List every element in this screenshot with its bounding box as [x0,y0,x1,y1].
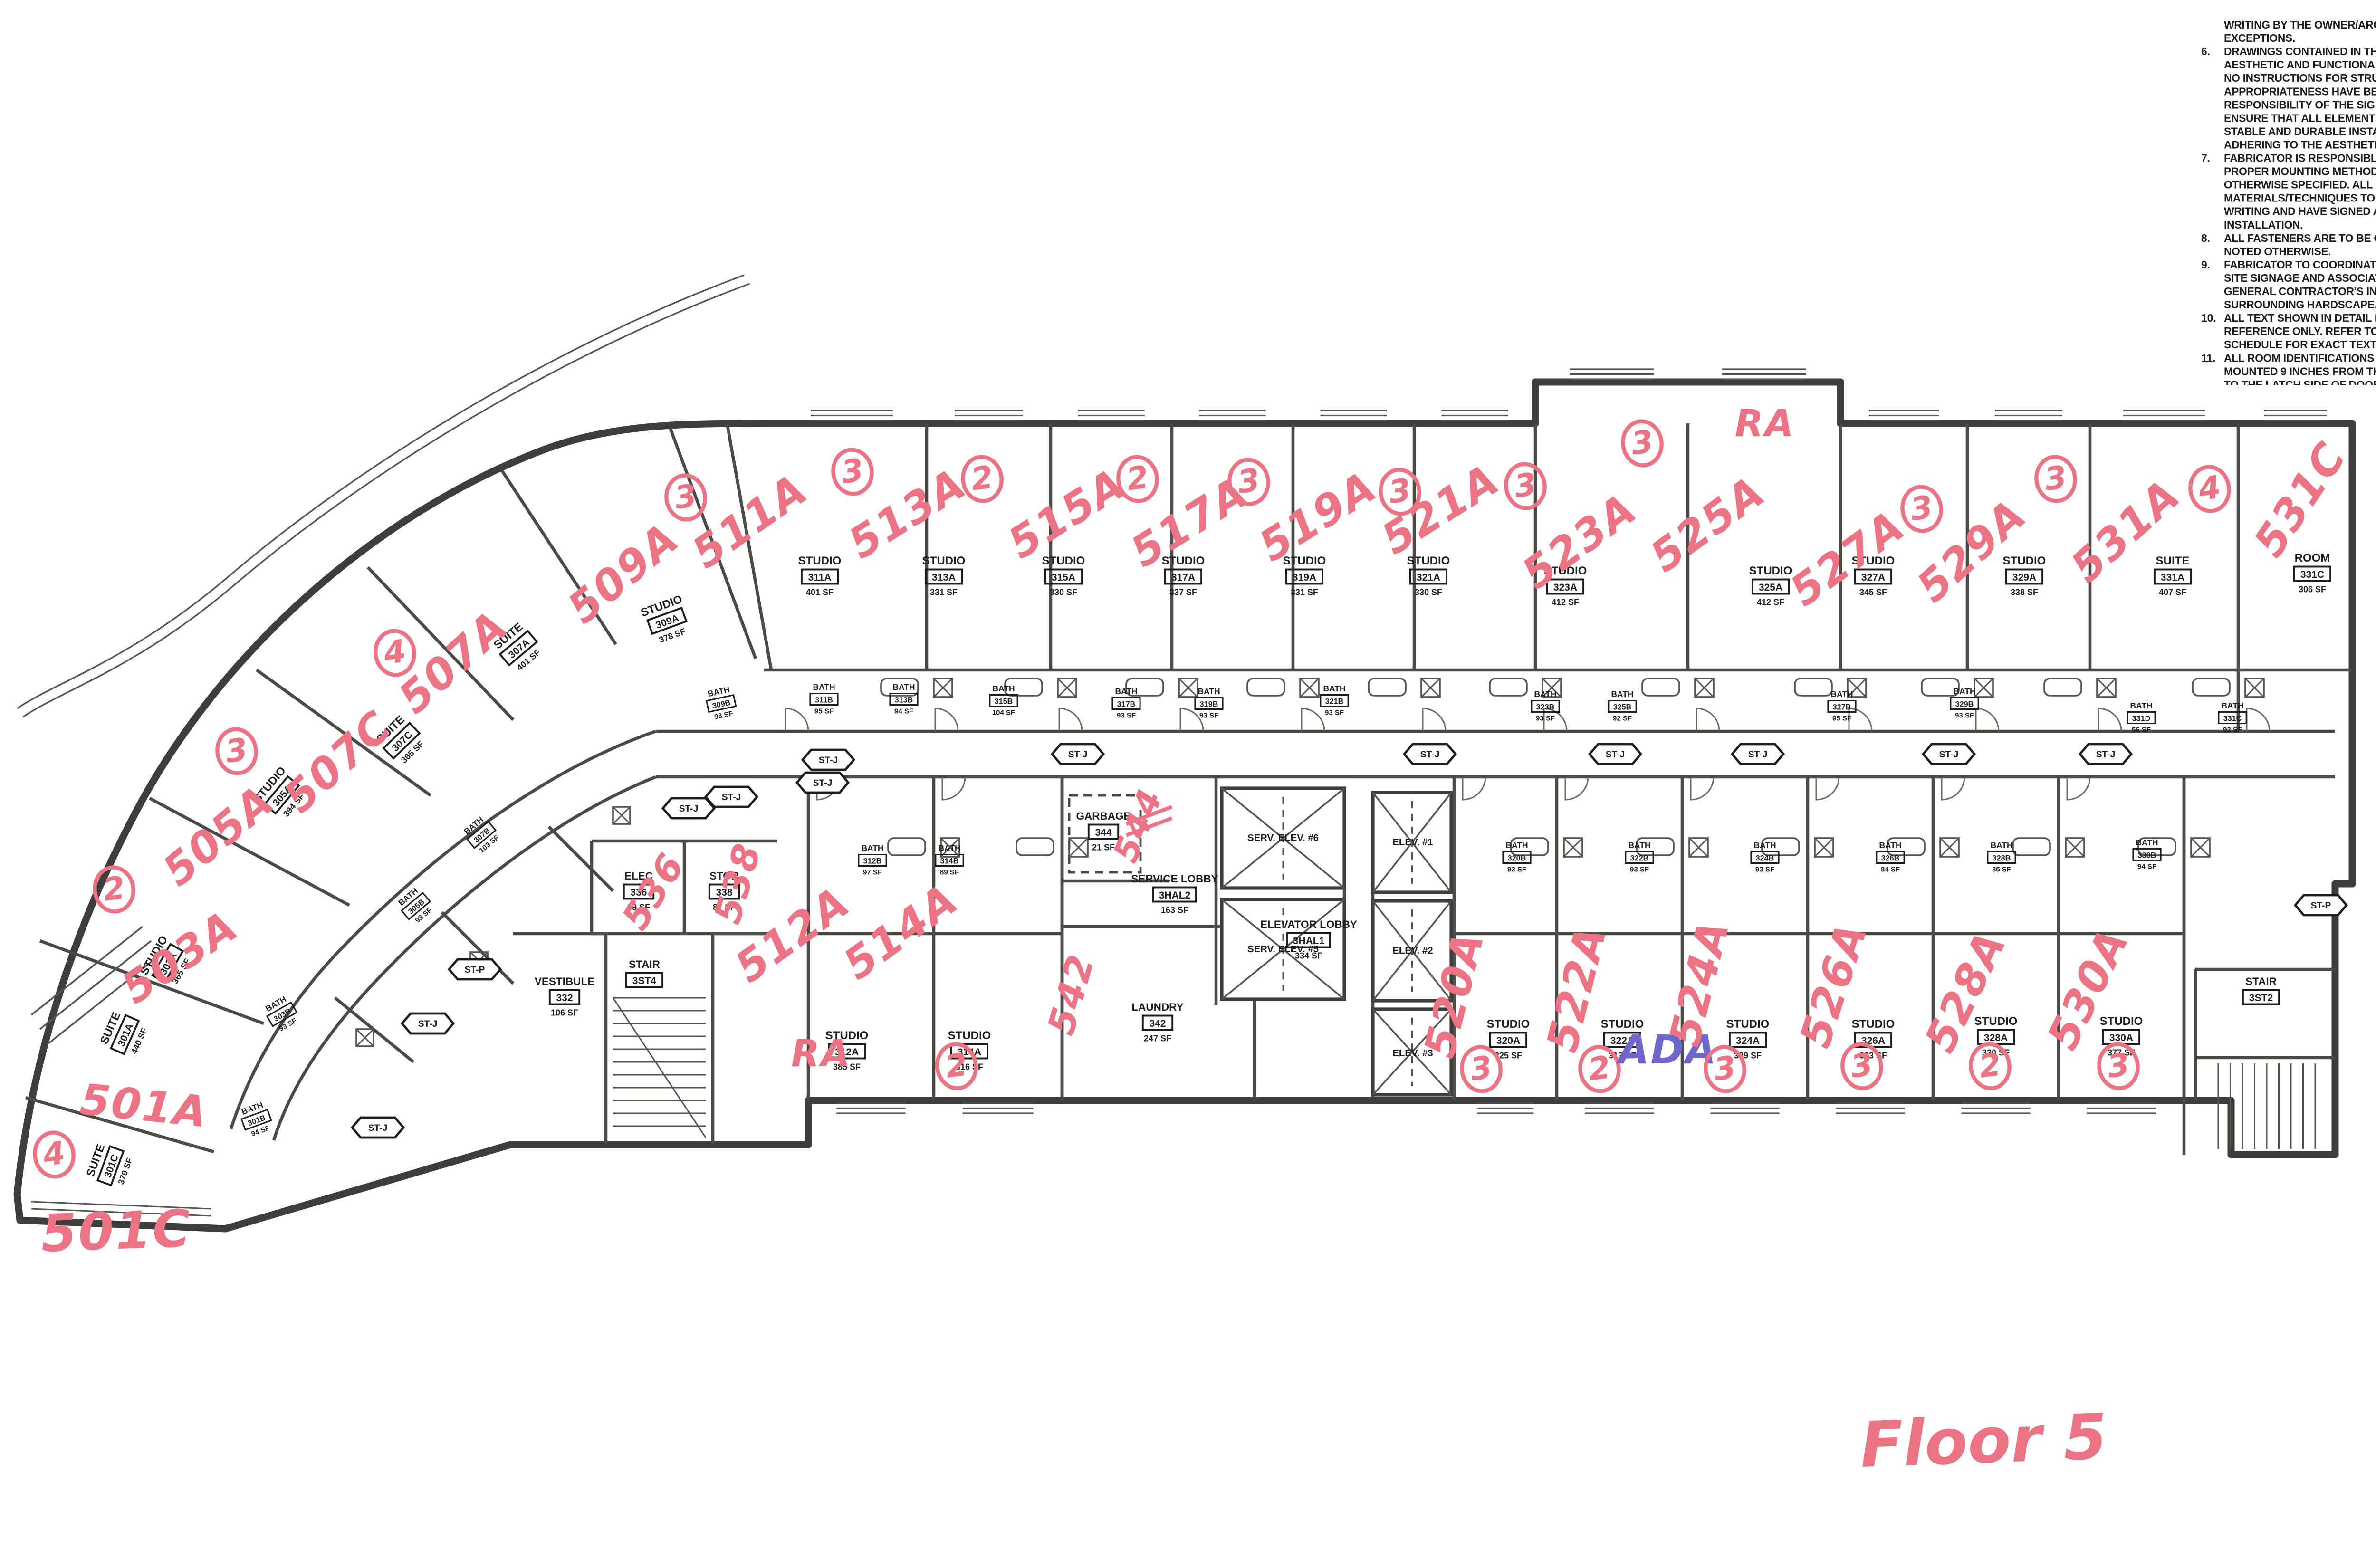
elevator-label: ELEV. #1 [1392,837,1433,848]
room-area: 306 SF [2299,585,2326,594]
bath-number: 312B [863,857,882,865]
room-type: ELEVATOR LOBBY [1260,918,1357,930]
room-type: SUITE [2156,555,2190,567]
bath-area: 93 SF [1955,712,1974,720]
keynote-marker-st-j: ST-J [1590,744,1641,764]
note-line: MATERIALS/TECHNIQUES TO BE APPROVED II [2224,192,2376,204]
bath-area: 56 SF [2132,726,2151,734]
bath-type: BATH [938,843,960,853]
keynote-text: ST-J [722,793,741,803]
keynote-text: ST-J [1939,750,1959,760]
bath-type: BATH [2130,701,2152,710]
note-line: EXCEPTIONS. [2224,32,2295,44]
room-type: STUDIO [1852,1018,1895,1031]
room-number: 329A [2012,572,2036,583]
bath-area: 94 SF [2137,863,2156,871]
bath-area: 93 SF [1507,866,1526,874]
note-line: SCHEDULE FOR EXACT TEXT ON EACH SIGN. [2224,338,2376,351]
keynote-text: ST-J [2096,750,2116,760]
keynote-marker-st-j: ST-J [2080,744,2131,764]
room-number: 3ST2 [2249,993,2273,1004]
room-area: 338 SF [2011,588,2038,597]
room-area: 330 SF [1415,588,1442,597]
elevator-label: SERV. ELEV. #5 [1247,944,1319,955]
bath-area: 93 SF [1755,866,1774,874]
room-area: 412 SF [1552,598,1579,607]
note-line: AESTHETIC AND FUNCTIONAL DESIGN INTENT [2224,58,2376,71]
room-number: 3HAL2 [1159,890,1191,901]
keynote-text: ST-P [2311,901,2331,911]
room-type: ROOM [2295,552,2330,564]
note-line: SITE SIGNAGE AND ASSOCIATED FOOTINGS W [2224,272,2376,284]
elevator-label: ELEV. #2 [1392,946,1433,956]
bath-number: 331D [2132,714,2151,723]
keynote-text: ST-J [813,778,833,788]
keynote-text: ST-J [1748,750,1768,760]
room-number: 313A [932,572,956,583]
bath-area: 93 SF [1199,712,1218,720]
bath-number: 325B [1613,703,1632,711]
room-type: STUDIO [1487,1018,1530,1031]
bath-area: 104 SF [992,709,1015,717]
room-number: 331A [2161,572,2184,583]
note-number: 11. [2201,352,2215,364]
room-area: 345 SF [1859,588,1887,597]
keynote-marker-st-j: ST-J [706,787,757,807]
room-area: 106 SF [551,1008,578,1018]
hand-ra-note: RA [1735,402,1795,445]
room-area: 331 SF [1291,588,1318,597]
note-line: STABLE AND DURABLE INSTALLATION WHILE [2224,125,2376,137]
bath-type: BATH [2136,838,2158,847]
room-number: 331C [2300,569,2324,580]
bath-area: 93 SF [1536,715,1555,723]
keynote-text: ST-J [1420,750,1440,760]
note-line: FABRICATOR TO COORDINATE THE INSTALLAT [2224,258,2376,271]
keynote-marker-st-p: ST-P [2295,895,2347,915]
note-number: 8. [2201,232,2210,244]
note-line: WRITING BY THE OWNER/ARCHITECT. NO [2224,19,2376,31]
room-area: 247 SF [1144,1034,1171,1043]
bath-number: 315B [995,697,1013,706]
bath-area: 89 SF [940,869,959,877]
hand-room-number: 501C [40,1199,192,1264]
room-number: 3ST4 [632,975,657,986]
room-area: 337 SF [1169,588,1197,597]
bath-area: 85 SF [1992,866,2011,874]
bath-area: 93 SF [1630,866,1649,874]
room-type: STUDIO [2100,1015,2143,1028]
room-type: STAIR [2245,975,2277,987]
bath-number: 329B [1955,700,1974,708]
room-type: STUDIO [1726,1018,1770,1031]
bath-type: BATH [1628,841,1650,850]
floorplan-drawing: SUITE301C379 SFSUITE301A440 SFSTUDIO303A… [0,0,2376,1568]
room-number: 344 [1095,827,1111,838]
note-line: ENSURE THAT ALL ELEMENTS ARE FABRICATE [2224,112,2376,124]
bath-number: 313B [895,696,913,704]
keynote-marker-st-j: ST-J [803,750,854,770]
note-line: INSTALLATION. [2224,219,2303,231]
bath-type: BATH [1115,687,1137,696]
bath-area: 95 SF [1832,715,1851,723]
room-area: 407 SF [2159,588,2186,597]
bath-type: BATH [1953,687,1975,696]
note-line: SURROUNDING HARDSCAPE. [2224,298,2376,311]
note-number: 6. [2201,45,2210,57]
bath-number: 314B [940,857,959,865]
note-line: TO THE LATCH SIDE OF DOOR FRAME. [2224,378,2376,391]
note-line: ALL FASTENERS ARE TO BE CONCEALED UNLE [2224,232,2376,244]
bath-number: 321B [1325,697,1344,706]
room-number: 320A [1496,1035,1520,1046]
keynote-marker-st-j: ST-J [402,1013,453,1033]
keynote-text: ST-J [819,755,838,765]
room-number: 321A [1417,572,1440,583]
note-line: WRITING AND HAVE SIGNED APPROVAL PRIO [2224,205,2376,218]
room-number: 311A [808,572,831,583]
bath-type: BATH [1198,687,1220,696]
room-type: STUDIO [1407,555,1450,567]
room-number: 330A [2109,1033,2133,1043]
bath-type: BATH [1323,684,1345,693]
note-number: 10. [2201,312,2216,324]
bath-type: BATH [1990,841,2012,850]
keynote-marker-st-j: ST-J [1732,744,1783,764]
room-area: 401 SF [806,588,834,597]
room-type: STUDIO [798,555,842,567]
room-type: VESTIBULE [535,975,594,987]
bath-number: 328B [1993,854,2011,862]
note-line: REFERENCE ONLY. REFER TO SIGNAGE MESSA [2224,325,2376,337]
bath-number: 319B [1200,700,1218,708]
note-line: GENERAL CONTRACTOR'S INSTALLATION OF T [2224,285,2376,297]
room-number: 324A [1736,1035,1760,1046]
room-number: 332 [556,993,573,1004]
bath-number: 330B [2138,851,2156,860]
keynote-marker-st-j: ST-J [1923,744,1974,764]
room-type: STAIR [629,958,660,970]
bath-number: 327B [1833,703,1851,711]
keynote-text: ST-J [368,1123,388,1133]
floorplan-sheet: SUITE301C379 SFSUITE301A440 SFSTUDIO303A… [0,0,2376,1568]
bath-area: 93 SF [1325,709,1344,717]
room-number: 328A [1984,1033,2008,1043]
hand-ra-note: RA [791,1033,851,1075]
keynote-text: ST-P [465,965,485,975]
note-line: FABRICATOR IS RESPONSIBLE FOR DETERMIN [2224,152,2376,164]
bath-area: 84 SF [1881,866,1900,874]
bath-area: 94 SF [894,708,913,716]
keynote-text: ST-J [679,804,699,814]
bath-type: BATH [1753,841,1776,850]
bath-type: BATH [1879,841,1901,850]
elevator-label: SERV. ELEV. #6 [1247,833,1319,843]
bath-area: 92 SF [2223,726,2242,734]
bath-area: 95 SF [814,708,834,716]
bath-number: 322B [1630,854,1649,862]
bath-type: BATH [1505,841,1528,850]
room-area: 330 SF [1050,588,1077,597]
room-type: STUDIO [948,1029,991,1042]
bath-number: 331C [2223,714,2242,723]
bath-type: BATH [813,682,835,692]
note-number: 7. [2201,152,2210,164]
bath-type: BATH [1534,689,1556,699]
room-area: 331 SF [930,588,958,597]
bath-type: BATH [1830,689,1853,699]
note-number: 9. [2201,258,2210,271]
bath-type: BATH [992,684,1015,693]
bath-area: 92 SF [1613,715,1632,723]
room-number: 315A [1052,572,1075,583]
note-line: ALL TEXT SHOWN IN DETAIL DRAWINGS IS FO [2224,312,2376,324]
note-line: RESPONSIBILITY OF THE SIGNAGE FABRICATO [2224,98,2376,111]
room-type: STUDIO [1042,555,1085,567]
note-line: APPROPRIATENESS HAVE BEEN MADE. IT IS T [2224,85,2376,97]
keynote-text: ST-J [1606,750,1625,760]
keynote-marker-st-j: ST-J [797,773,848,793]
room-number: 319A [1293,572,1316,583]
room-type: SERVICE LOBBY [1131,873,1218,885]
bath-type: BATH [861,843,883,853]
keynote-marker-st-j: ST-J [1404,744,1456,764]
bath-area: 93 SF [1117,712,1136,720]
room-area: 163 SF [1161,906,1188,915]
bath-number: 311B [815,696,833,704]
note-line: NO INSTRUCTIONS FOR STRUCTURAL [2224,72,2376,84]
room-number: 317A [1171,572,1195,583]
bath-type: BATH [2221,701,2243,710]
room-area: 412 SF [1757,598,1784,607]
keynote-marker-st-j: ST-J [1052,744,1103,764]
room-type: STUDIO [2003,555,2046,567]
keynote-marker-st-j: ST-J [352,1118,403,1138]
bath-number: 317B [1117,700,1136,708]
bath-number: 320B [1508,854,1526,862]
bath-type: BATH [1611,689,1633,699]
bath-number: 326B [1881,854,1900,862]
room-number: 325A [1759,582,1782,593]
note-line: ALL ROOM IDENTIFICATIONS SIGNS ARE TO B [2224,352,2376,364]
floor-note-handwriting: Floor 5 [1859,1400,2108,1482]
general-notes-text: WRITING BY THE OWNER/ARCHITECT. NOEXCEPT… [2201,19,2376,391]
note-line: NOTED OTHERWISE. [2224,245,2331,258]
note-line: ADHERING TO THE AESTHETIC DETAILS INDIC. [2224,138,2376,151]
room-number: 342 [1149,1018,1166,1029]
bath-number: 323B [1536,703,1555,711]
room-type: STUDIO [922,555,966,567]
bath-number: 324B [1756,854,1774,862]
keynote-text: ST-J [1068,750,1088,760]
bath-type: BATH [892,682,915,692]
note-line: MOUNTED 9 INCHES FROM THE CENTER OF T [2224,365,2376,377]
bath-area: 97 SF [863,869,882,877]
note-line: DRAWINGS CONTAINED IN THIS PACKAGE AR [2224,45,2376,57]
room-type: LAUNDRY [1131,1001,1183,1013]
keynote-marker-st-p: ST-P [449,959,500,979]
keynote-text: ST-J [418,1019,438,1029]
note-line: PROPER MOUNTING METHODS FOR SIGNS UI [2224,165,2376,178]
keynote-marker-st-j: ST-J [663,798,714,818]
note-line: OTHERWISE SPECIFIED. ALL MOUNTING [2224,179,2376,191]
